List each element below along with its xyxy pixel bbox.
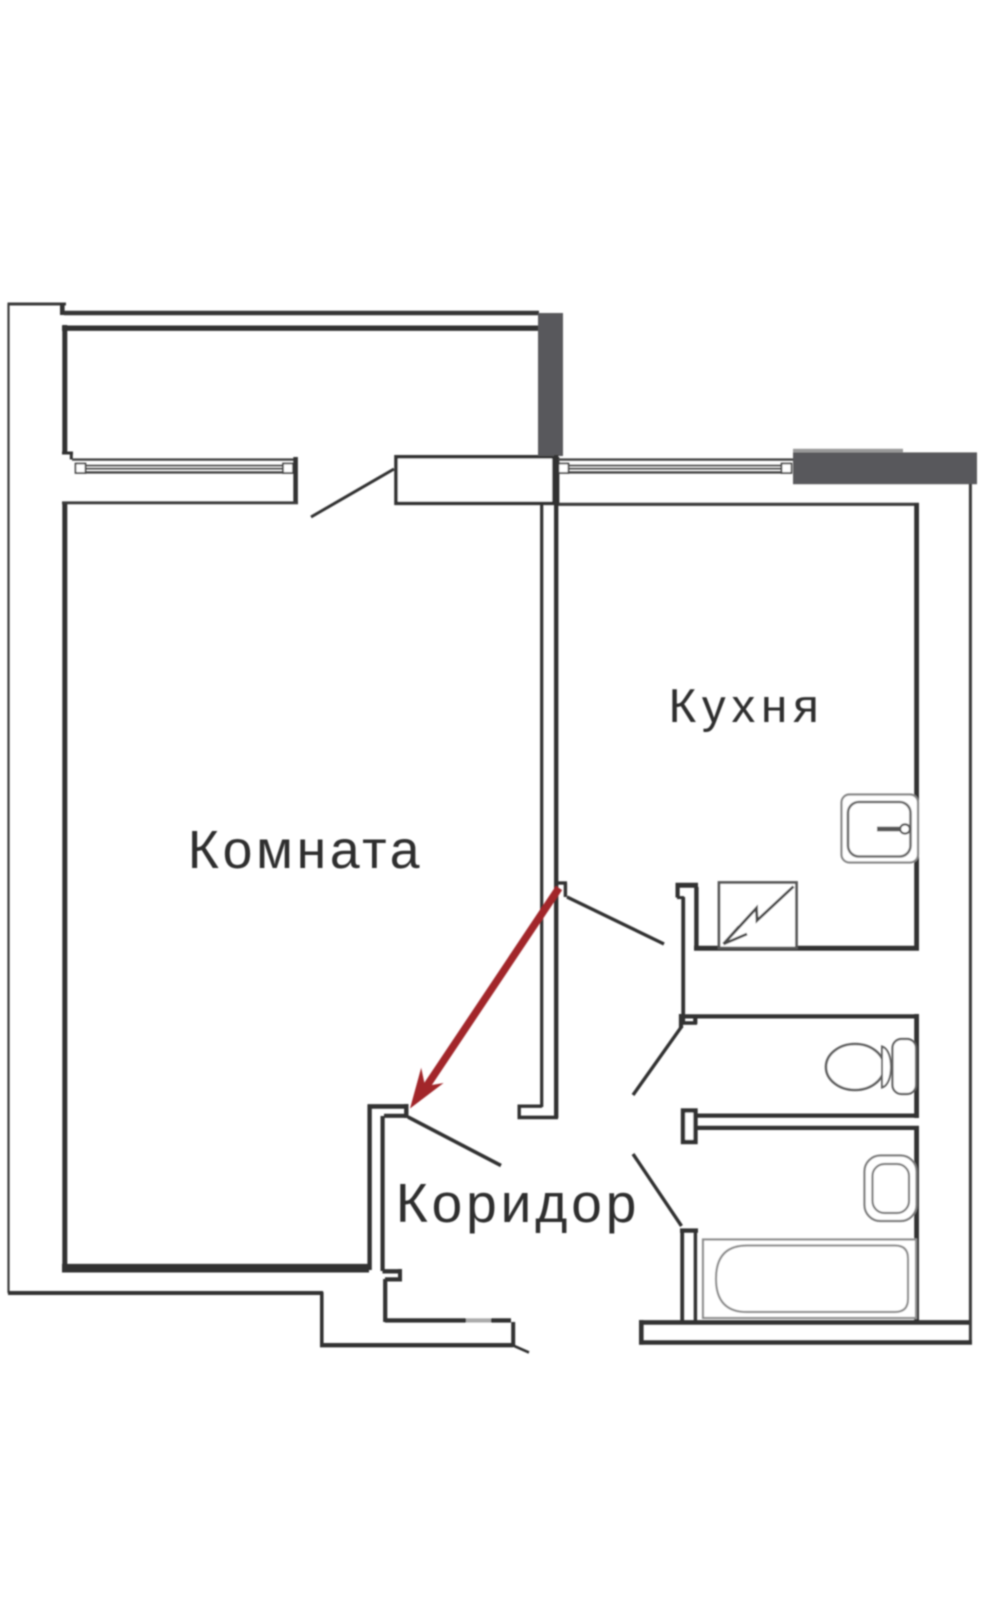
svg-text:Комната: Комната (188, 821, 423, 880)
svg-text:Коридор: Коридор (396, 1172, 641, 1234)
svg-text:Кухня: Кухня (668, 680, 824, 733)
